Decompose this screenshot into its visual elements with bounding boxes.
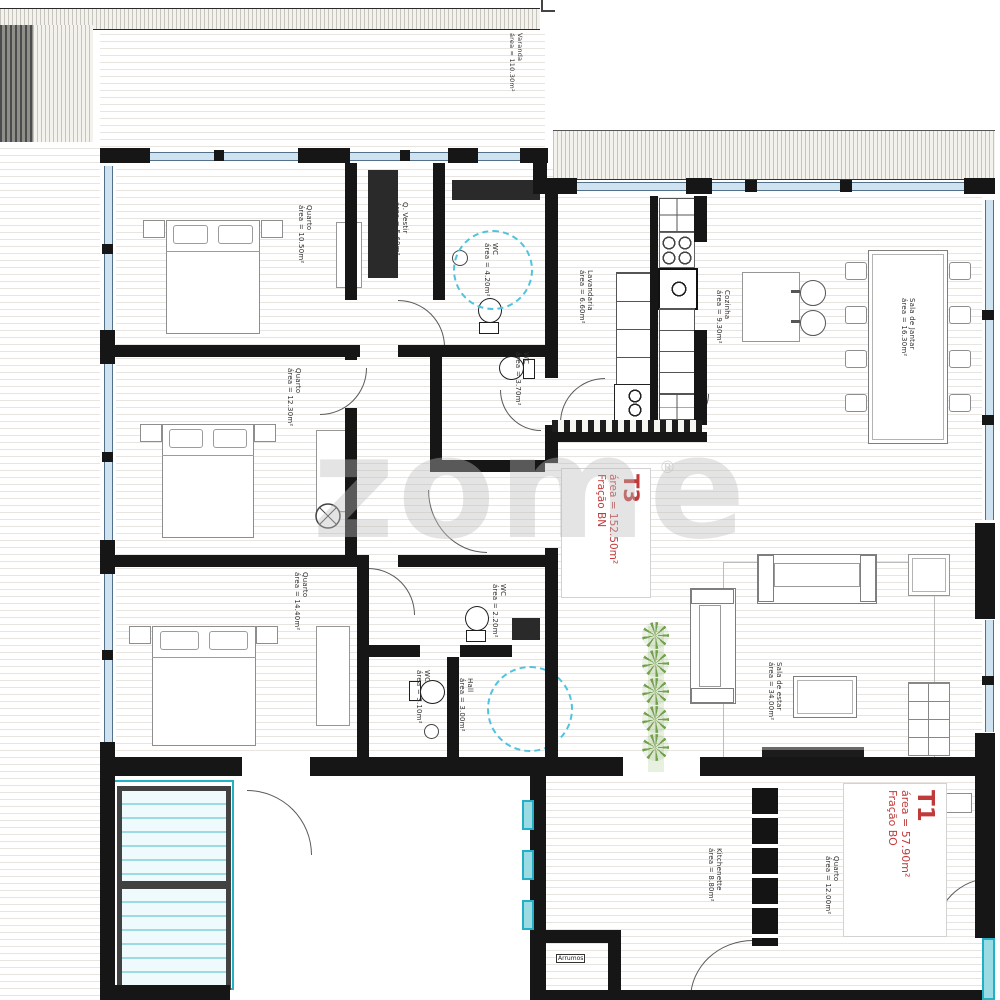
teal-fitting bbox=[522, 800, 534, 830]
balcony-deck-topright bbox=[553, 130, 995, 180]
kitchen-cabinets bbox=[659, 308, 695, 394]
column-symbol-icon bbox=[314, 502, 342, 530]
wall bbox=[100, 776, 115, 1000]
turning-circle bbox=[487, 666, 573, 752]
plant-icon bbox=[642, 678, 669, 705]
window-mullion bbox=[214, 150, 224, 161]
wc-sink-counter bbox=[512, 618, 540, 640]
terrace-left-floor bbox=[0, 142, 100, 1000]
room-label-sala-estar: Sala de estarárea = 34.00m² bbox=[767, 662, 783, 720]
kitchen-cabinet bbox=[659, 198, 695, 232]
built-in-cabinet-strip bbox=[752, 788, 778, 946]
nightstand bbox=[140, 424, 162, 442]
wall bbox=[345, 163, 357, 300]
wall bbox=[100, 345, 360, 357]
window bbox=[577, 182, 686, 191]
stair-flight bbox=[117, 786, 231, 886]
window-mullion bbox=[745, 180, 757, 192]
window bbox=[150, 152, 298, 161]
chair bbox=[845, 394, 867, 412]
room-label-arrumos: Arrumos bbox=[556, 954, 585, 963]
stair-flight bbox=[117, 884, 231, 990]
wall bbox=[700, 757, 988, 776]
room-label-varanda: Varandaárea = 110.30m² bbox=[508, 33, 523, 92]
nightstand bbox=[944, 793, 972, 813]
floor-plan-canvas: Varandaárea = 110.30m² Quartoárea = 10.5… bbox=[0, 0, 1000, 1000]
kitchen-island bbox=[742, 272, 800, 342]
plant-icon bbox=[642, 650, 669, 677]
window-mullion bbox=[102, 452, 113, 462]
nightstand bbox=[254, 424, 276, 442]
window bbox=[478, 152, 520, 161]
chair bbox=[949, 262, 971, 280]
bed bbox=[152, 626, 256, 746]
wall bbox=[100, 555, 358, 567]
nightstand bbox=[143, 220, 165, 238]
wall bbox=[975, 523, 995, 619]
armchair bbox=[908, 554, 950, 596]
wardrobe bbox=[316, 430, 348, 512]
window-mullion bbox=[982, 310, 994, 320]
kitchen-threshold-hatch bbox=[552, 420, 702, 432]
room-label-sala-jantar: Sala de Jantarárea = 16.30m² bbox=[900, 298, 916, 356]
wall bbox=[100, 148, 150, 163]
wall bbox=[100, 757, 242, 776]
wall bbox=[694, 330, 707, 425]
wall bbox=[694, 196, 707, 242]
chair bbox=[949, 394, 971, 412]
room-label-quarto3: Quartoárea = 14.40m² bbox=[293, 572, 309, 630]
room-label-hall: Hallárea = 3.00m² bbox=[458, 678, 474, 732]
wall bbox=[545, 548, 558, 760]
wall bbox=[398, 555, 545, 567]
sink bbox=[424, 724, 439, 739]
window-mullion bbox=[102, 650, 113, 660]
stove-burners bbox=[659, 232, 695, 268]
room-label-wc4: WCárea = 3.10m² bbox=[415, 670, 431, 724]
wall bbox=[357, 555, 369, 760]
wardrobe bbox=[316, 626, 350, 726]
balcony-deck-left-top bbox=[33, 25, 93, 142]
plant-icon bbox=[642, 734, 669, 761]
bed bbox=[166, 220, 260, 334]
room-label-wc3: WCárea = 2.20m² bbox=[491, 584, 507, 638]
balcony-corner-dark bbox=[0, 25, 33, 142]
toilet-fixture bbox=[464, 606, 490, 642]
kitchen-cabinet bbox=[659, 394, 695, 420]
window bbox=[985, 620, 994, 676]
window bbox=[985, 682, 994, 732]
wall bbox=[345, 345, 357, 360]
wall bbox=[433, 163, 445, 300]
nightstand bbox=[256, 626, 278, 644]
cooktop-pot bbox=[800, 280, 826, 306]
teal-fitting bbox=[522, 900, 534, 930]
room-label-wc1: WCárea = 4.20m² bbox=[483, 243, 499, 297]
bed bbox=[162, 424, 254, 538]
window bbox=[985, 420, 994, 520]
laundry-cabinets bbox=[616, 272, 654, 386]
wall bbox=[448, 148, 478, 163]
wall bbox=[357, 645, 420, 657]
wall bbox=[345, 408, 357, 555]
fraction-t3-label: T3 área = 152.50m² Fração BN bbox=[595, 474, 643, 564]
chair bbox=[949, 350, 971, 368]
room-label-quarto4: Quartoárea = 12.00m² bbox=[824, 856, 840, 914]
window-mullion bbox=[982, 415, 994, 425]
window-mullion bbox=[840, 180, 852, 192]
room-label-kitchenette: Kitchenetteárea = 8.80m² bbox=[707, 848, 723, 902]
cooktop-pot bbox=[800, 310, 826, 336]
window bbox=[985, 200, 994, 310]
balcony-floor-topleft bbox=[100, 28, 545, 148]
wall bbox=[545, 432, 707, 442]
wall bbox=[430, 345, 442, 472]
window-mullion bbox=[102, 244, 113, 254]
window bbox=[350, 152, 448, 161]
kitchen-sink bbox=[658, 268, 698, 310]
plant-icon bbox=[642, 706, 669, 733]
wall bbox=[460, 645, 512, 657]
sofa bbox=[757, 554, 877, 604]
sofa bbox=[690, 588, 736, 704]
wall bbox=[975, 790, 995, 938]
chair bbox=[949, 306, 971, 324]
chair bbox=[845, 262, 867, 280]
room-label-cozinha: Cozinhaárea = 9.30m² bbox=[715, 290, 731, 344]
chair bbox=[845, 350, 867, 368]
wall bbox=[545, 194, 558, 378]
wall bbox=[430, 460, 545, 472]
wall bbox=[100, 985, 230, 1000]
room-label-qvestir: Q. Vestirárea = 5.60m² bbox=[393, 202, 409, 256]
wall bbox=[545, 178, 577, 194]
wall bbox=[608, 930, 621, 1000]
wall bbox=[650, 196, 658, 425]
wall bbox=[686, 178, 712, 194]
shelving-unit bbox=[908, 682, 950, 756]
dimension-tick bbox=[543, 10, 555, 12]
room-label-lavandaria: Lavandariaárea = 6.60m² bbox=[578, 270, 594, 324]
teal-fitting bbox=[522, 850, 534, 880]
window-teal bbox=[982, 938, 995, 1000]
window-mullion bbox=[982, 676, 994, 685]
door-swing bbox=[247, 790, 312, 855]
fraction-t1-label: T1 área = 57.90m² Fração BO bbox=[886, 790, 938, 877]
wall bbox=[310, 757, 546, 776]
coffee-table bbox=[793, 676, 857, 718]
nightstand bbox=[261, 220, 283, 238]
window bbox=[985, 315, 994, 418]
wall bbox=[964, 178, 995, 194]
nightstand bbox=[129, 626, 151, 644]
room-label-wc2: WCárea = 3.70m² bbox=[514, 352, 530, 406]
wc-counter bbox=[452, 180, 540, 200]
wall bbox=[298, 148, 350, 163]
room-label-quarto1: Quartoárea = 10.50m² bbox=[297, 205, 313, 263]
plant-icon bbox=[642, 622, 669, 649]
window-mullion bbox=[400, 150, 410, 161]
room-label-quarto2: Quartoárea = 12.30m² bbox=[286, 368, 302, 426]
chair bbox=[845, 306, 867, 324]
